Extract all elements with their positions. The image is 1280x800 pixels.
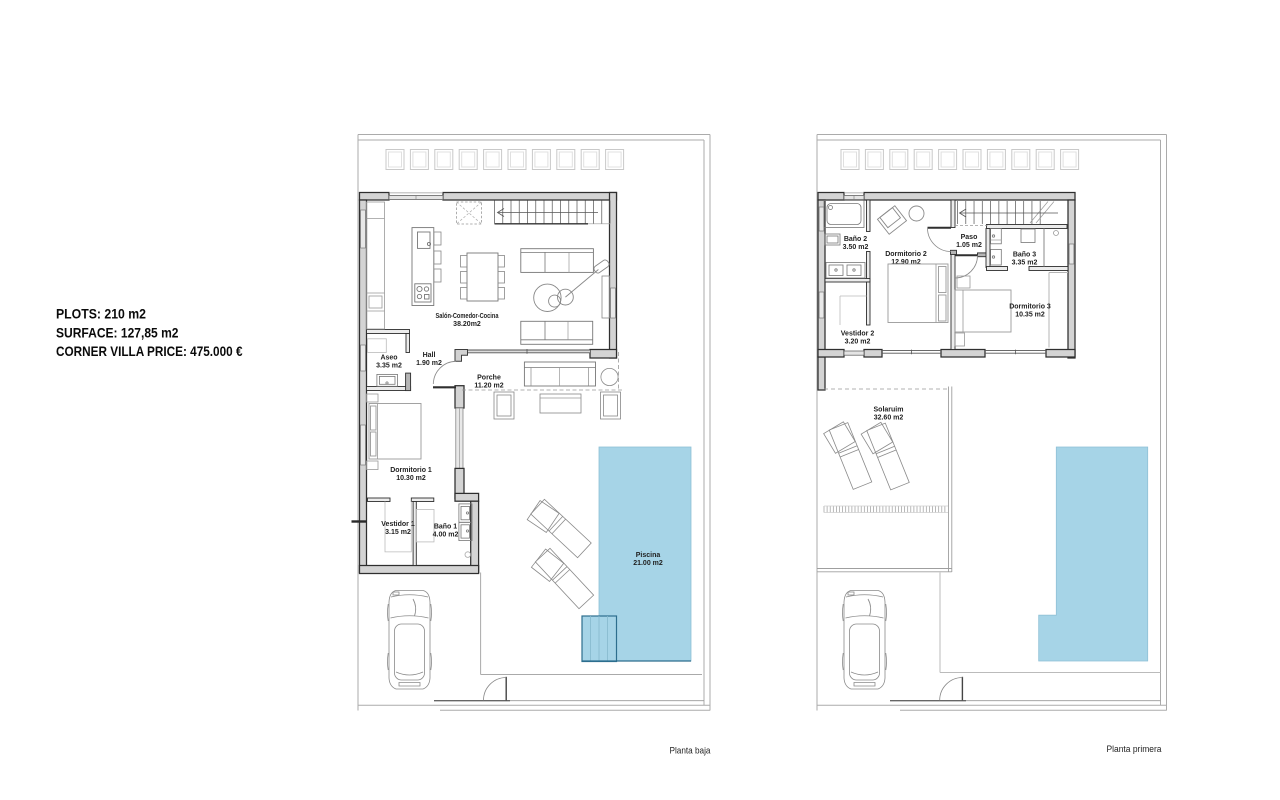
svg-text:CORNER VILLA PRICE: 475.000 €: CORNER VILLA PRICE: 475.000 €	[56, 343, 243, 359]
svg-text:Dormitorio 3: Dormitorio 3	[1009, 304, 1051, 311]
svg-text:38.20m2: 38.20m2	[453, 321, 481, 328]
svg-text:11.20 m2: 11.20 m2	[474, 383, 503, 390]
svg-text:Solaruim: Solaruim	[874, 407, 904, 414]
svg-text:Vestidor 2: Vestidor 2	[841, 331, 875, 338]
svg-text:Piscina: Piscina	[636, 552, 661, 559]
svg-text:Paso: Paso	[961, 234, 978, 241]
svg-text:3.35 m2: 3.35 m2	[376, 363, 402, 370]
svg-text:Planta primera: Planta primera	[1107, 744, 1162, 754]
svg-text:32.60 m2: 32.60 m2	[874, 415, 904, 422]
svg-text:3.50 m2: 3.50 m2	[843, 244, 869, 251]
svg-text:Baño 3: Baño 3	[1013, 252, 1036, 259]
svg-text:Vestidor 1: Vestidor 1	[381, 521, 415, 528]
svg-text:3.20 m2: 3.20 m2	[845, 339, 871, 346]
svg-text:Salón-Comedor-Cocina: Salón-Comedor-Cocina	[436, 313, 499, 320]
svg-text:12.90 m2: 12.90 m2	[891, 259, 921, 266]
svg-text:Hall: Hall	[423, 352, 436, 359]
svg-text:1.05 m2: 1.05 m2	[956, 242, 982, 249]
svg-text:21.00 m2: 21.00 m2	[633, 560, 663, 567]
svg-text:3.15 m2: 3.15 m2	[385, 529, 411, 536]
svg-text:Baño 2: Baño 2	[844, 236, 867, 243]
svg-text:Baño 1: Baño 1	[434, 524, 457, 531]
svg-text:Aseo: Aseo	[380, 355, 397, 362]
svg-text:10.30 m2: 10.30 m2	[396, 475, 426, 482]
svg-text:3.35 m2: 3.35 m2	[1012, 260, 1038, 267]
svg-text:Porche: Porche	[477, 375, 501, 382]
svg-text:Planta baja: Planta baja	[670, 746, 711, 756]
svg-text:PLOTS: 210 m2: PLOTS: 210 m2	[56, 306, 146, 322]
svg-text:1.90 m2: 1.90 m2	[416, 360, 442, 367]
svg-text:SURFACE: 127,85 m2: SURFACE: 127,85 m2	[56, 324, 179, 340]
svg-text:Dormitorio 2: Dormitorio 2	[885, 251, 927, 258]
svg-text:10.35 m2: 10.35 m2	[1015, 312, 1045, 319]
svg-text:Dormitorio 1: Dormitorio 1	[390, 467, 432, 474]
svg-text:4.00 m2: 4.00 m2	[433, 532, 459, 539]
